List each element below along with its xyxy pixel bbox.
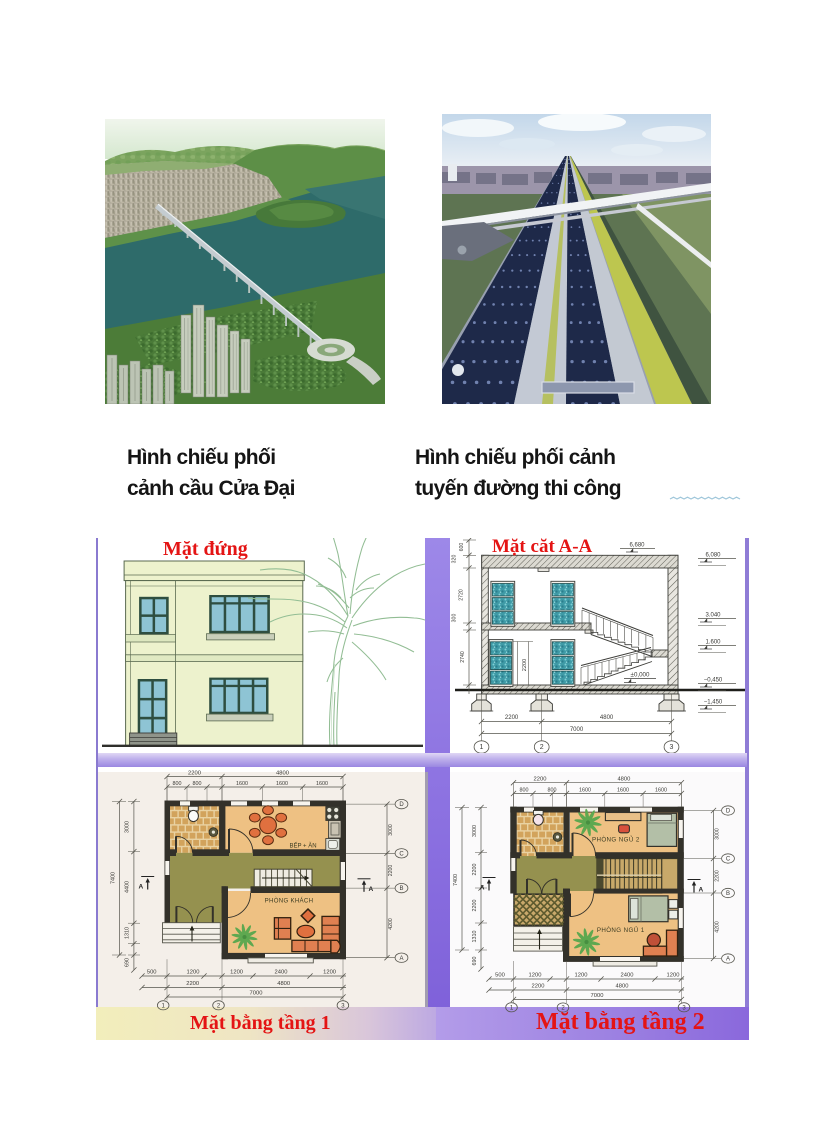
svg-text:1200: 1200 [575,972,588,978]
svg-text:4800: 4800 [276,770,289,776]
svg-text:1200: 1200 [529,972,542,978]
svg-text:B: B [726,891,730,897]
svg-text:1: 1 [162,1003,166,1009]
svg-text:800: 800 [520,787,529,793]
svg-text:2200: 2200 [534,777,547,783]
svg-text:6,680: 6,680 [629,543,645,549]
svg-text:1310: 1310 [472,931,478,943]
svg-text:D: D [726,809,731,815]
svg-text:2740: 2740 [460,651,466,663]
svg-text:3.040: 3.040 [705,613,721,619]
svg-text:1200: 1200 [230,969,243,975]
svg-text:2200: 2200 [522,659,528,671]
svg-text:3000: 3000 [472,825,478,837]
svg-text:500: 500 [147,969,157,975]
svg-text:C: C [399,851,404,857]
svg-text:7000: 7000 [570,727,584,733]
svg-text:500: 500 [495,972,505,978]
svg-text:4400: 4400 [125,881,131,893]
svg-text:4800: 4800 [277,981,290,987]
svg-text:2200: 2200 [472,900,478,912]
svg-text:PHÒNG KHÁCH: PHÒNG KHÁCH [265,898,314,905]
svg-text:7000: 7000 [250,991,263,997]
svg-text:1600: 1600 [276,781,288,787]
svg-text:2200: 2200 [715,870,721,882]
svg-text:A: A [369,886,374,893]
svg-text:800: 800 [193,781,202,787]
svg-text:2: 2 [540,744,544,751]
svg-text:C: C [726,857,731,863]
svg-text:2200: 2200 [388,865,394,877]
svg-text:A: A [399,956,403,962]
svg-text:7400: 7400 [111,872,117,884]
svg-text:A: A [699,887,704,894]
svg-text:2200: 2200 [532,984,545,990]
svg-text:4200: 4200 [715,921,721,933]
svg-text:1600: 1600 [617,787,629,793]
svg-text:D: D [399,802,404,808]
svg-text:±0,000: ±0,000 [631,672,650,679]
svg-text:4800: 4800 [600,715,614,721]
svg-text:800: 800 [548,787,557,793]
svg-text:690: 690 [472,957,478,966]
svg-text:2400: 2400 [621,972,634,978]
svg-text:2720: 2720 [459,589,465,601]
svg-text:2: 2 [217,1003,221,1009]
svg-text:1600: 1600 [236,781,248,787]
svg-text:PHÒNG NGỦ 1: PHÒNG NGỦ 1 [597,927,645,934]
svg-text:7000: 7000 [591,993,604,999]
svg-text:1200: 1200 [323,969,336,975]
svg-text:7400: 7400 [453,874,459,886]
svg-text:3000: 3000 [715,828,721,840]
svg-text:4800: 4800 [616,984,629,990]
svg-text:1: 1 [510,1005,514,1011]
svg-text:320: 320 [452,555,458,564]
svg-text:1600: 1600 [655,787,667,793]
svg-text:3: 3 [341,1003,345,1009]
svg-text:300: 300 [452,614,458,623]
svg-text:2200: 2200 [505,715,519,721]
svg-text:2200: 2200 [188,770,201,776]
svg-text:690: 690 [125,958,131,967]
svg-text:800: 800 [173,781,182,787]
svg-text:1.600: 1.600 [705,640,721,646]
svg-text:6,080: 6,080 [705,553,721,559]
svg-text:1200: 1200 [667,972,680,978]
svg-text:−1,450: −1,450 [704,700,723,706]
svg-text:PHÒNG NGỦ 2: PHÒNG NGỦ 2 [592,837,640,844]
svg-text:2400: 2400 [275,969,288,975]
svg-text:A: A [138,884,143,891]
svg-text:A: A [480,885,485,892]
svg-text:2200: 2200 [472,864,478,876]
svg-text:1310: 1310 [125,927,131,939]
svg-text:1200: 1200 [187,969,200,975]
svg-text:−0,450: −0,450 [704,678,723,684]
svg-text:A: A [726,957,730,963]
svg-text:1600: 1600 [316,781,328,787]
svg-text:1: 1 [480,744,484,751]
svg-text:3000: 3000 [125,821,131,833]
svg-text:600: 600 [459,543,465,552]
svg-text:4200: 4200 [388,918,394,930]
svg-text:2200: 2200 [186,981,199,987]
svg-text:3: 3 [670,744,674,751]
svg-text:3000: 3000 [388,824,394,836]
svg-text:4800: 4800 [617,777,630,783]
svg-text:1600: 1600 [579,787,591,793]
svg-text:B: B [399,886,403,892]
svg-text:BẾP + ĂN: BẾP + ĂN [289,843,316,850]
